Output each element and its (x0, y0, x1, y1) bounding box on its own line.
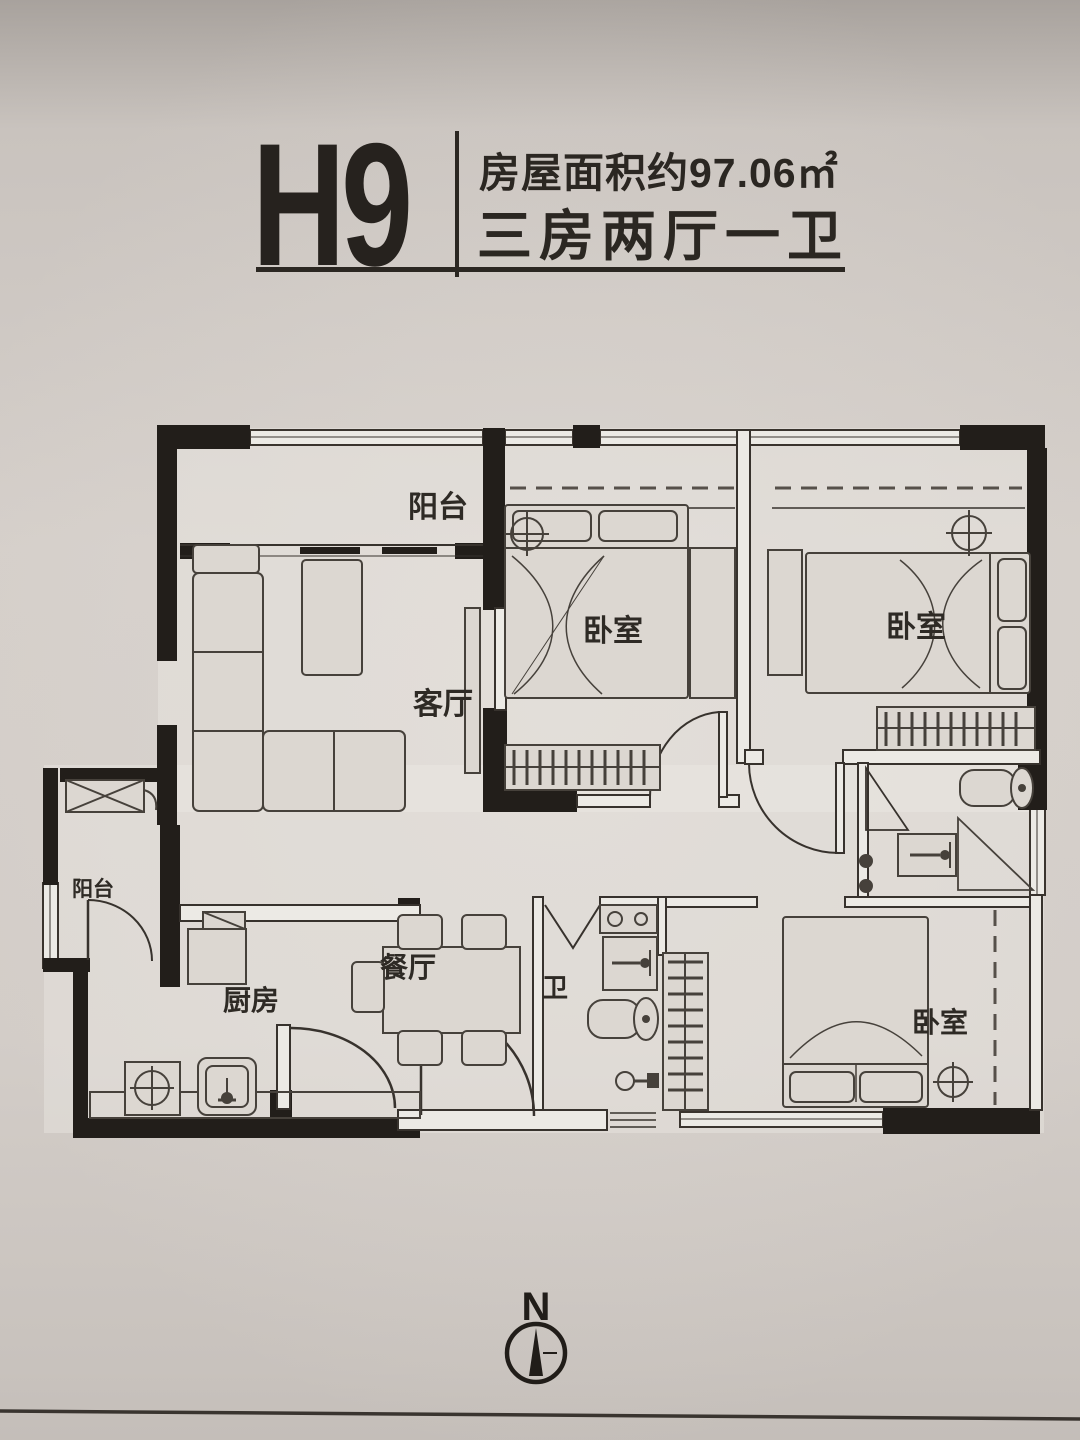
washing-machine-icon (66, 780, 156, 812)
bed3-icon (783, 917, 928, 1107)
stove-icon (125, 1062, 180, 1115)
room-label-bedroom2: 卧室 (886, 610, 946, 644)
room-label-kitchen: 厨房 (223, 984, 279, 1016)
wardrobe1-icon (505, 745, 660, 790)
floorplan-svg: 阳台 客厅 卧室 卧室 卧室 阳台 厨房 餐厅 卫 N (0, 0, 1080, 1440)
bed1-desk-icon (690, 548, 735, 698)
bottom-rule (0, 1411, 1080, 1419)
bath-cabinet-icon (600, 905, 657, 933)
room-label-dining: 餐厅 (380, 952, 436, 983)
coffee-table-icon (302, 560, 362, 675)
room-label-balcony-top: 阳台 (408, 490, 468, 524)
compass-icon: N (507, 1285, 565, 1382)
basin2-icon (898, 834, 956, 876)
bath-sink-icon (603, 937, 657, 990)
room-label-bedroom3: 卧室 (912, 1006, 968, 1038)
wardrobe3-icon (663, 953, 708, 1110)
room-label-living: 客厅 (413, 687, 473, 721)
room-label-balcony-left: 阳台 (72, 877, 114, 901)
wardrobe2-icon (877, 707, 1035, 750)
toilet2-icon (960, 768, 1033, 808)
toilet-icon (588, 998, 658, 1040)
room-label-bedroom1: 卧室 (583, 614, 643, 648)
floorplan-page: H9 房屋面积约97.06㎡ 三房两厅一卫 (0, 0, 1080, 1440)
kitchen-sink-icon (198, 1058, 256, 1115)
room-label-bath: 卫 (542, 973, 568, 1003)
bed2-desk-icon (768, 550, 802, 675)
